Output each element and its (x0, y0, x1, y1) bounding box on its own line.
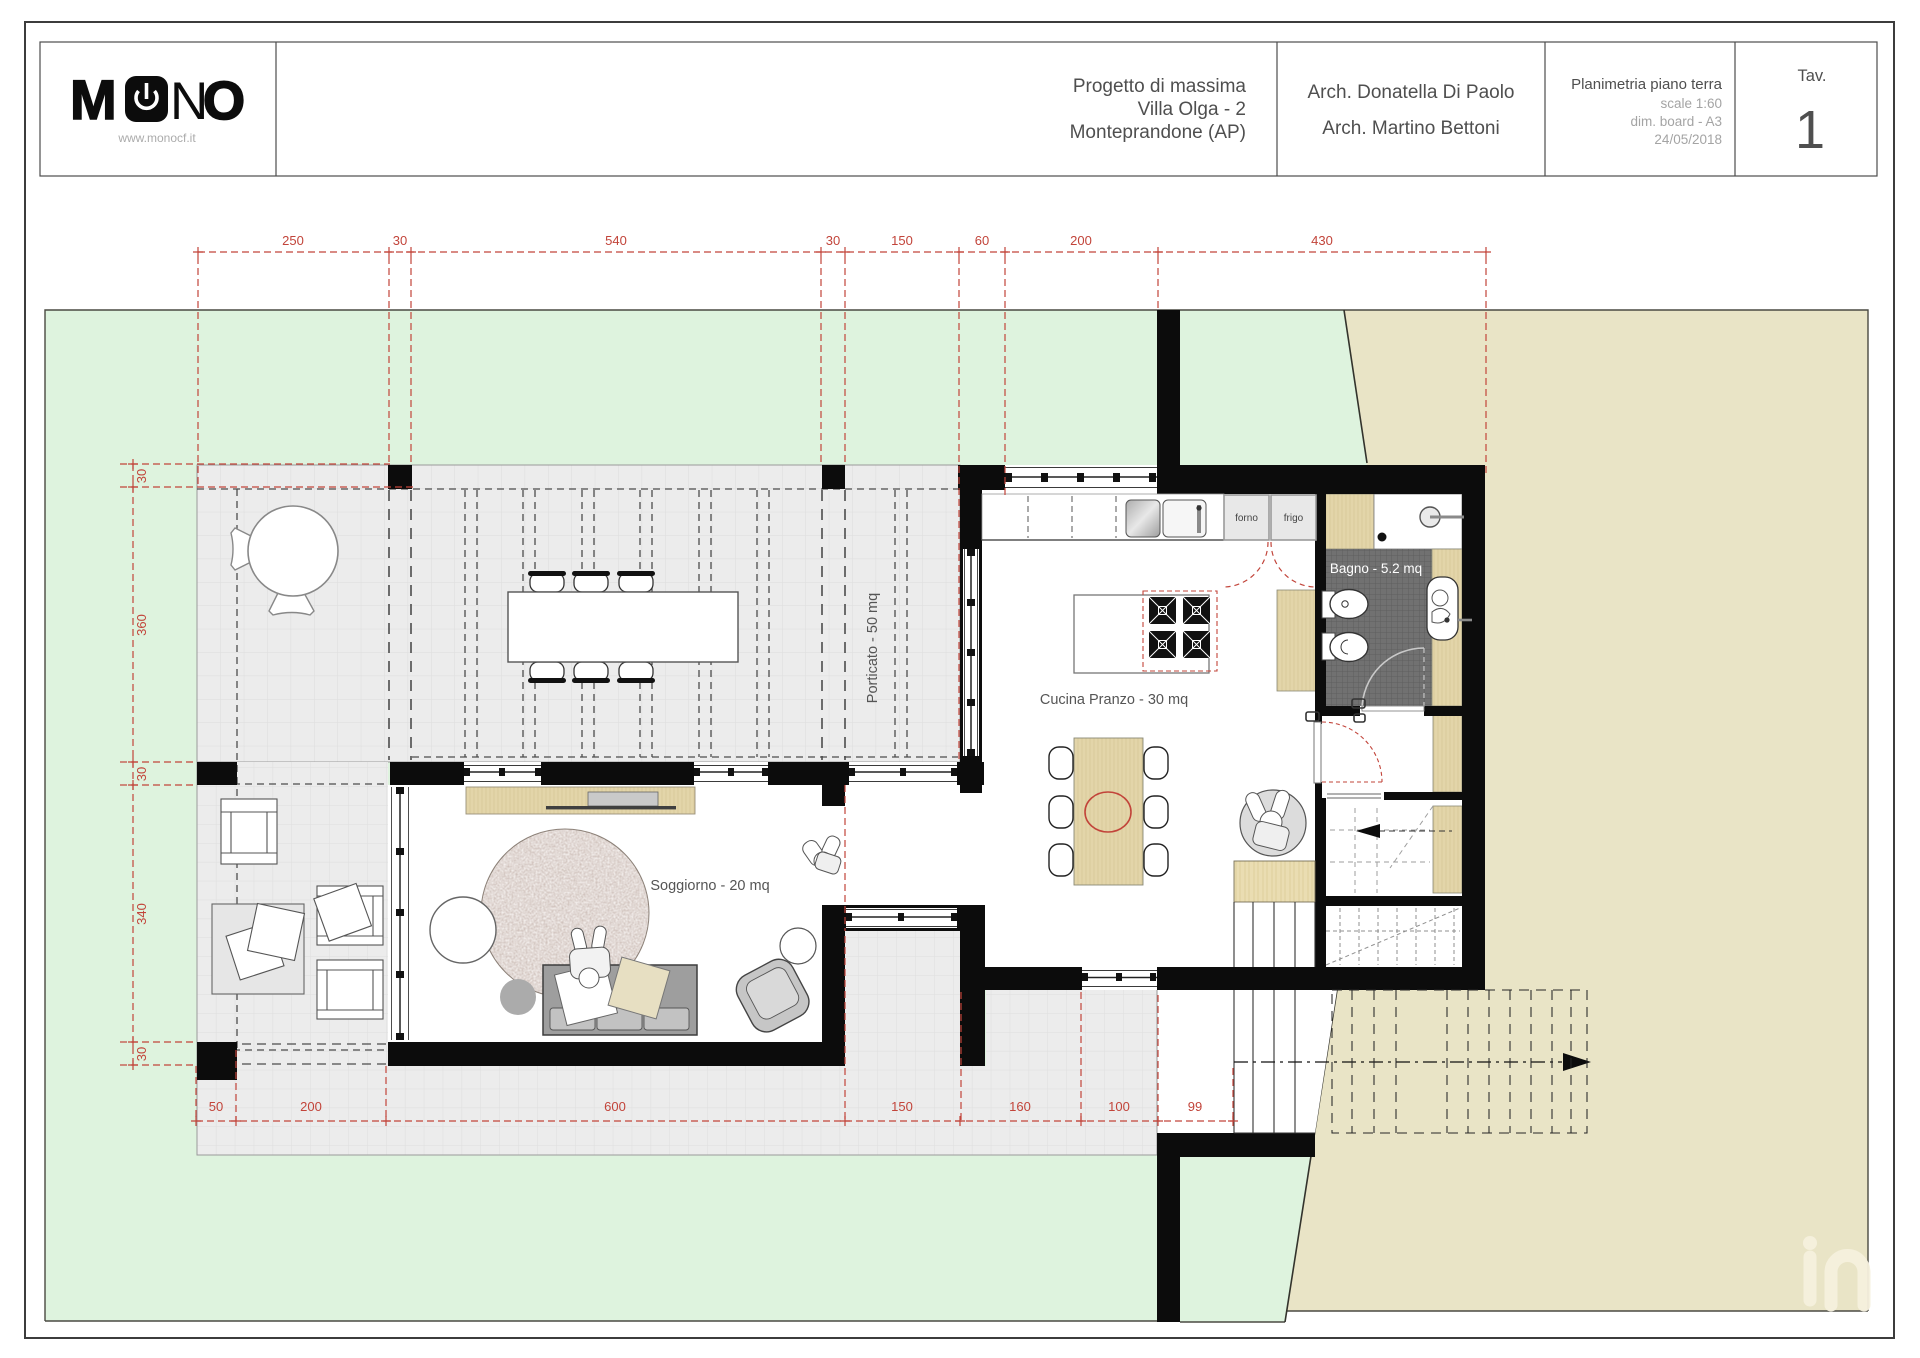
svg-text:Planimetria piano terra: Planimetria piano terra (1571, 76, 1723, 93)
svg-text:24/05/2018: 24/05/2018 (1654, 132, 1722, 147)
svg-text:Arch. Donatella Di Paolo: Arch. Donatella Di Paolo (1308, 82, 1515, 103)
svg-text:100: 100 (1108, 1099, 1130, 1114)
svg-text:Bagno - 5.2 mq: Bagno - 5.2 mq (1330, 561, 1422, 576)
svg-text:150: 150 (891, 233, 913, 248)
svg-text:30: 30 (393, 233, 407, 248)
svg-text:150: 150 (891, 1099, 913, 1114)
svg-text:600: 600 (604, 1099, 626, 1114)
svg-text:200: 200 (300, 1099, 322, 1114)
svg-text:O: O (203, 71, 245, 131)
svg-text:200: 200 (1070, 233, 1092, 248)
svg-text:30: 30 (134, 767, 149, 781)
svg-text:Porticato - 50 mq: Porticato - 50 mq (865, 593, 881, 703)
svg-text:Tav.: Tav. (1797, 67, 1826, 85)
svg-text:Villa Olga - 2: Villa Olga - 2 (1138, 99, 1246, 120)
svg-text:360: 360 (134, 614, 149, 636)
svg-text:30: 30 (134, 1047, 149, 1061)
svg-text:99: 99 (1188, 1099, 1202, 1114)
svg-text:60: 60 (975, 233, 989, 248)
svg-text:Monteprandone (AP): Monteprandone (AP) (1070, 122, 1246, 143)
svg-text:250: 250 (282, 233, 304, 248)
svg-text:30: 30 (134, 469, 149, 483)
svg-text:scale 1:60: scale 1:60 (1660, 96, 1722, 111)
svg-text:forno: forno (1235, 513, 1258, 524)
svg-text:frigo: frigo (1284, 513, 1304, 524)
svg-text:430: 430 (1311, 233, 1333, 248)
svg-text:340: 340 (134, 903, 149, 925)
svg-text:Cucina Pranzo - 30 mq: Cucina Pranzo - 30 mq (1040, 692, 1188, 708)
svg-text:540: 540 (605, 233, 627, 248)
svg-text:Arch. Martino Bettoni: Arch. Martino Bettoni (1322, 118, 1499, 139)
svg-text:160: 160 (1009, 1099, 1031, 1114)
svg-text:1: 1 (1795, 100, 1825, 160)
svg-text:M: M (70, 68, 115, 131)
svg-text:www.monocf.it: www.monocf.it (117, 131, 196, 145)
svg-text:30: 30 (826, 233, 840, 248)
svg-text:dim. board - A3: dim. board - A3 (1630, 114, 1722, 129)
svg-text:Progetto di massima: Progetto di massima (1073, 76, 1247, 97)
svg-text:Soggiorno - 20 mq: Soggiorno - 20 mq (650, 878, 769, 894)
svg-text:50: 50 (209, 1099, 223, 1114)
